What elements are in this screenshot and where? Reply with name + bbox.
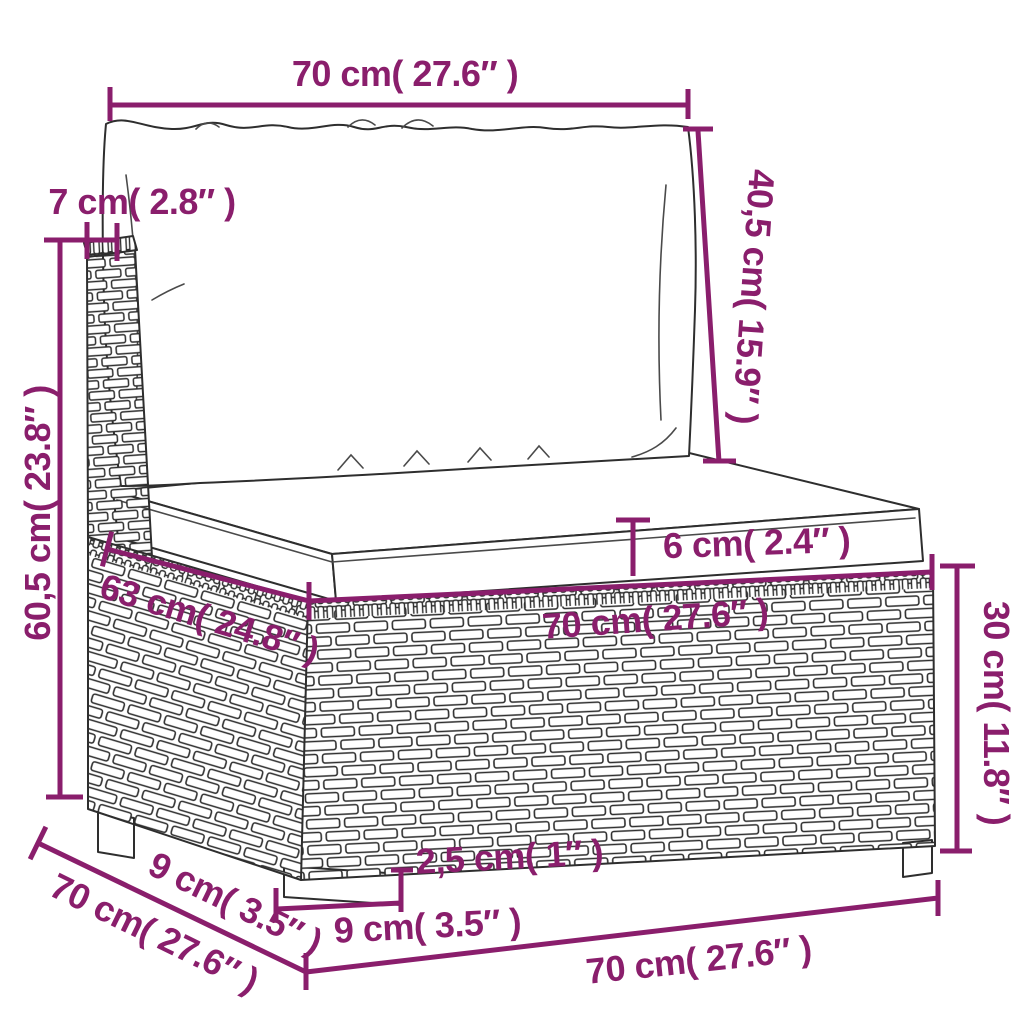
dim-label-total-height: 60,5 cm( 23.8″ )	[17, 385, 58, 640]
dimension-total-height: 60,5 cm( 23.8″ )	[17, 240, 83, 797]
dimension-top-width: 70 cm( 27.6″ )	[110, 53, 688, 121]
dim-label-back-height: 40,5 cm( 15.9″ )	[724, 168, 783, 426]
sofa-dimension-diagram: 70 cm( 27.6″ ) 40,5 cm( 15.9″ ) 7 cm( 2.…	[0, 0, 1024, 1024]
dimension-base-height: 30 cm( 11.8″ )	[940, 566, 1017, 851]
dim-label-leg-height: 2,5 cm( 1″ )	[415, 831, 604, 882]
back-cushion	[103, 120, 696, 486]
dim-label-top-width: 70 cm( 27.6″ )	[292, 53, 518, 94]
diagram-svg: 70 cm( 27.6″ ) 40,5 cm( 15.9″ ) 7 cm( 2.…	[0, 0, 1024, 1024]
dimension-back-height: 40,5 cm( 15.9″ )	[683, 129, 783, 462]
sofa-illustration	[84, 120, 935, 905]
dim-label-back-thickness: 7 cm( 2.8″ )	[48, 181, 235, 222]
dim-label-cushion-thickness: 6 cm( 2.4″ )	[662, 519, 851, 567]
dim-label-leg-offset-front: 9 cm( 3.5″ )	[333, 900, 522, 951]
dim-label-base-height: 30 cm( 11.8″ )	[976, 601, 1017, 825]
